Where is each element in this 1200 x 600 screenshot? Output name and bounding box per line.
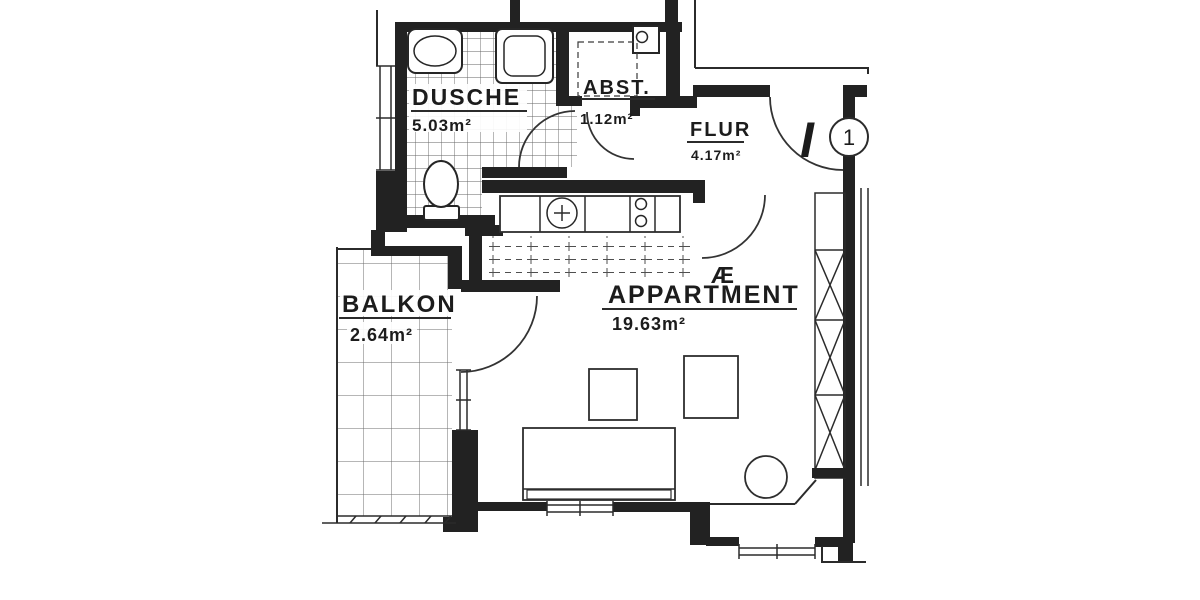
room-name-appartment: APPARTMENT xyxy=(608,281,800,309)
room-area-balkon: 2.64m² xyxy=(350,325,413,345)
room-name-flur: FLUR xyxy=(690,119,751,141)
bed-icon xyxy=(523,428,675,500)
room-name-abst: ABST. xyxy=(583,77,651,99)
toilet-icon xyxy=(424,161,459,220)
window-bottom-center xyxy=(547,501,613,516)
floor-plan-page: DUSCHE 5.03m² ABST. 1.12m² FLUR 4.17m² A… xyxy=(0,0,1200,600)
room-area-abst: 1.12m² xyxy=(580,111,634,128)
round-table-icon xyxy=(745,456,787,498)
entrance-letter: I xyxy=(800,112,815,168)
kitchen-hall-tile-floor xyxy=(484,236,695,280)
window-bottom-right xyxy=(739,544,815,559)
overlay-letter: Æ xyxy=(711,262,734,288)
sink-icon xyxy=(408,29,462,73)
balcony-railing xyxy=(322,516,456,523)
room-label-dusche: DUSCHE 5.03m² xyxy=(409,84,527,135)
entrance-annotation: I 1 xyxy=(800,112,868,168)
window-livingroom-left xyxy=(456,370,471,430)
unit-number: 1 xyxy=(843,125,855,150)
room-label-flur: FLUR 4.17m² xyxy=(687,119,751,163)
shower-icon xyxy=(496,29,553,83)
room-area-appartment: 19.63m² xyxy=(612,314,686,334)
wardrobe-icon xyxy=(812,193,848,478)
hall-door-arc xyxy=(702,195,765,258)
armchair-icon xyxy=(684,356,738,418)
window-bathroom-left xyxy=(376,66,395,170)
room-name-balkon: BALKON xyxy=(342,291,457,318)
balcony-door-arc xyxy=(461,296,537,372)
room-area-dusche: 5.03m² xyxy=(412,116,472,135)
balcony-tile-floor xyxy=(338,250,452,516)
room-name-dusche: DUSCHE xyxy=(412,84,521,110)
floor-plan-drawing: DUSCHE 5.03m² ABST. 1.12m² FLUR 4.17m² A… xyxy=(0,0,1200,600)
side-table-icon xyxy=(589,369,637,420)
room-area-flur: 4.17m² xyxy=(691,147,741,163)
kitchenette-icon xyxy=(500,196,680,232)
kitchen-sink-icon xyxy=(547,198,577,228)
